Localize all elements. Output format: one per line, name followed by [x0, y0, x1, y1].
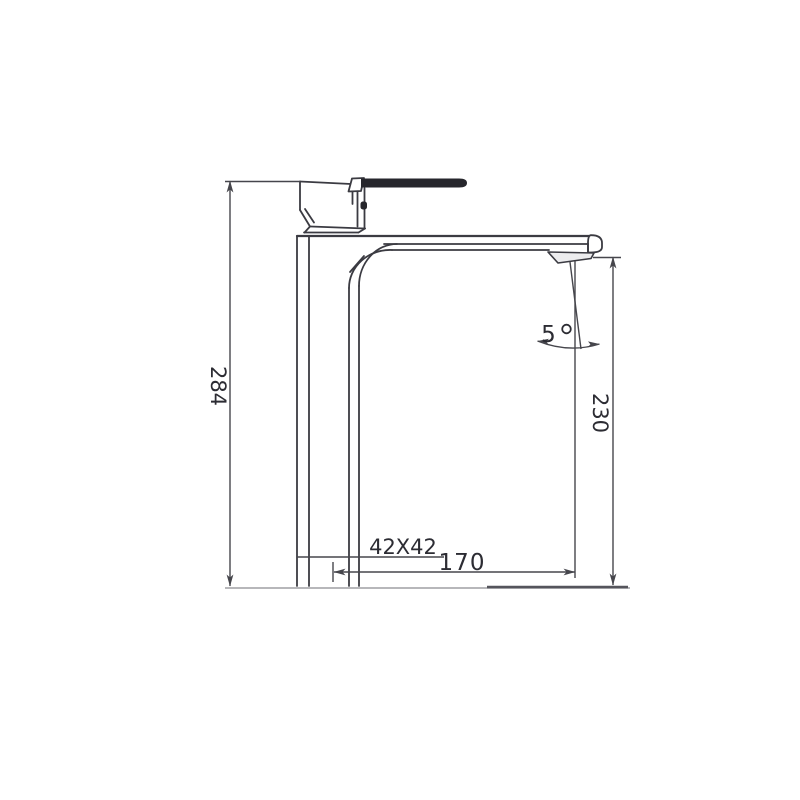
- dimension-outlet-height: 230: [588, 257, 621, 586]
- label-body-section: 42X42: [369, 535, 437, 559]
- spout-end-cap: [588, 235, 602, 252]
- label-outlet-height: 230: [588, 393, 612, 433]
- dimension-overall-height: 284: [206, 181, 300, 587]
- mounting-surface: [225, 587, 630, 588]
- angle-arc-right-arrow: [588, 341, 600, 347]
- label-reach: 170: [439, 550, 486, 576]
- label-overall-height: 284: [206, 366, 230, 406]
- degree-symbol-icon: [562, 325, 571, 334]
- faucet-spec-drawing-page: 5 284 230 170: [0, 0, 800, 800]
- handle-flare-outer: [300, 210, 310, 227]
- lever-bar: [361, 179, 467, 188]
- dimension-body-section: 42X42: [297, 535, 444, 559]
- technical-drawing: 5 284 230 170: [0, 0, 800, 800]
- faucet-handle: [300, 178, 467, 233]
- handle-top-shoulder: [300, 182, 351, 185]
- angle-value-label: 5: [541, 322, 557, 348]
- outlet-aerator-wedge: [548, 252, 594, 263]
- handle-pivot-notch: [361, 202, 368, 210]
- faucet-outline: [297, 235, 602, 586]
